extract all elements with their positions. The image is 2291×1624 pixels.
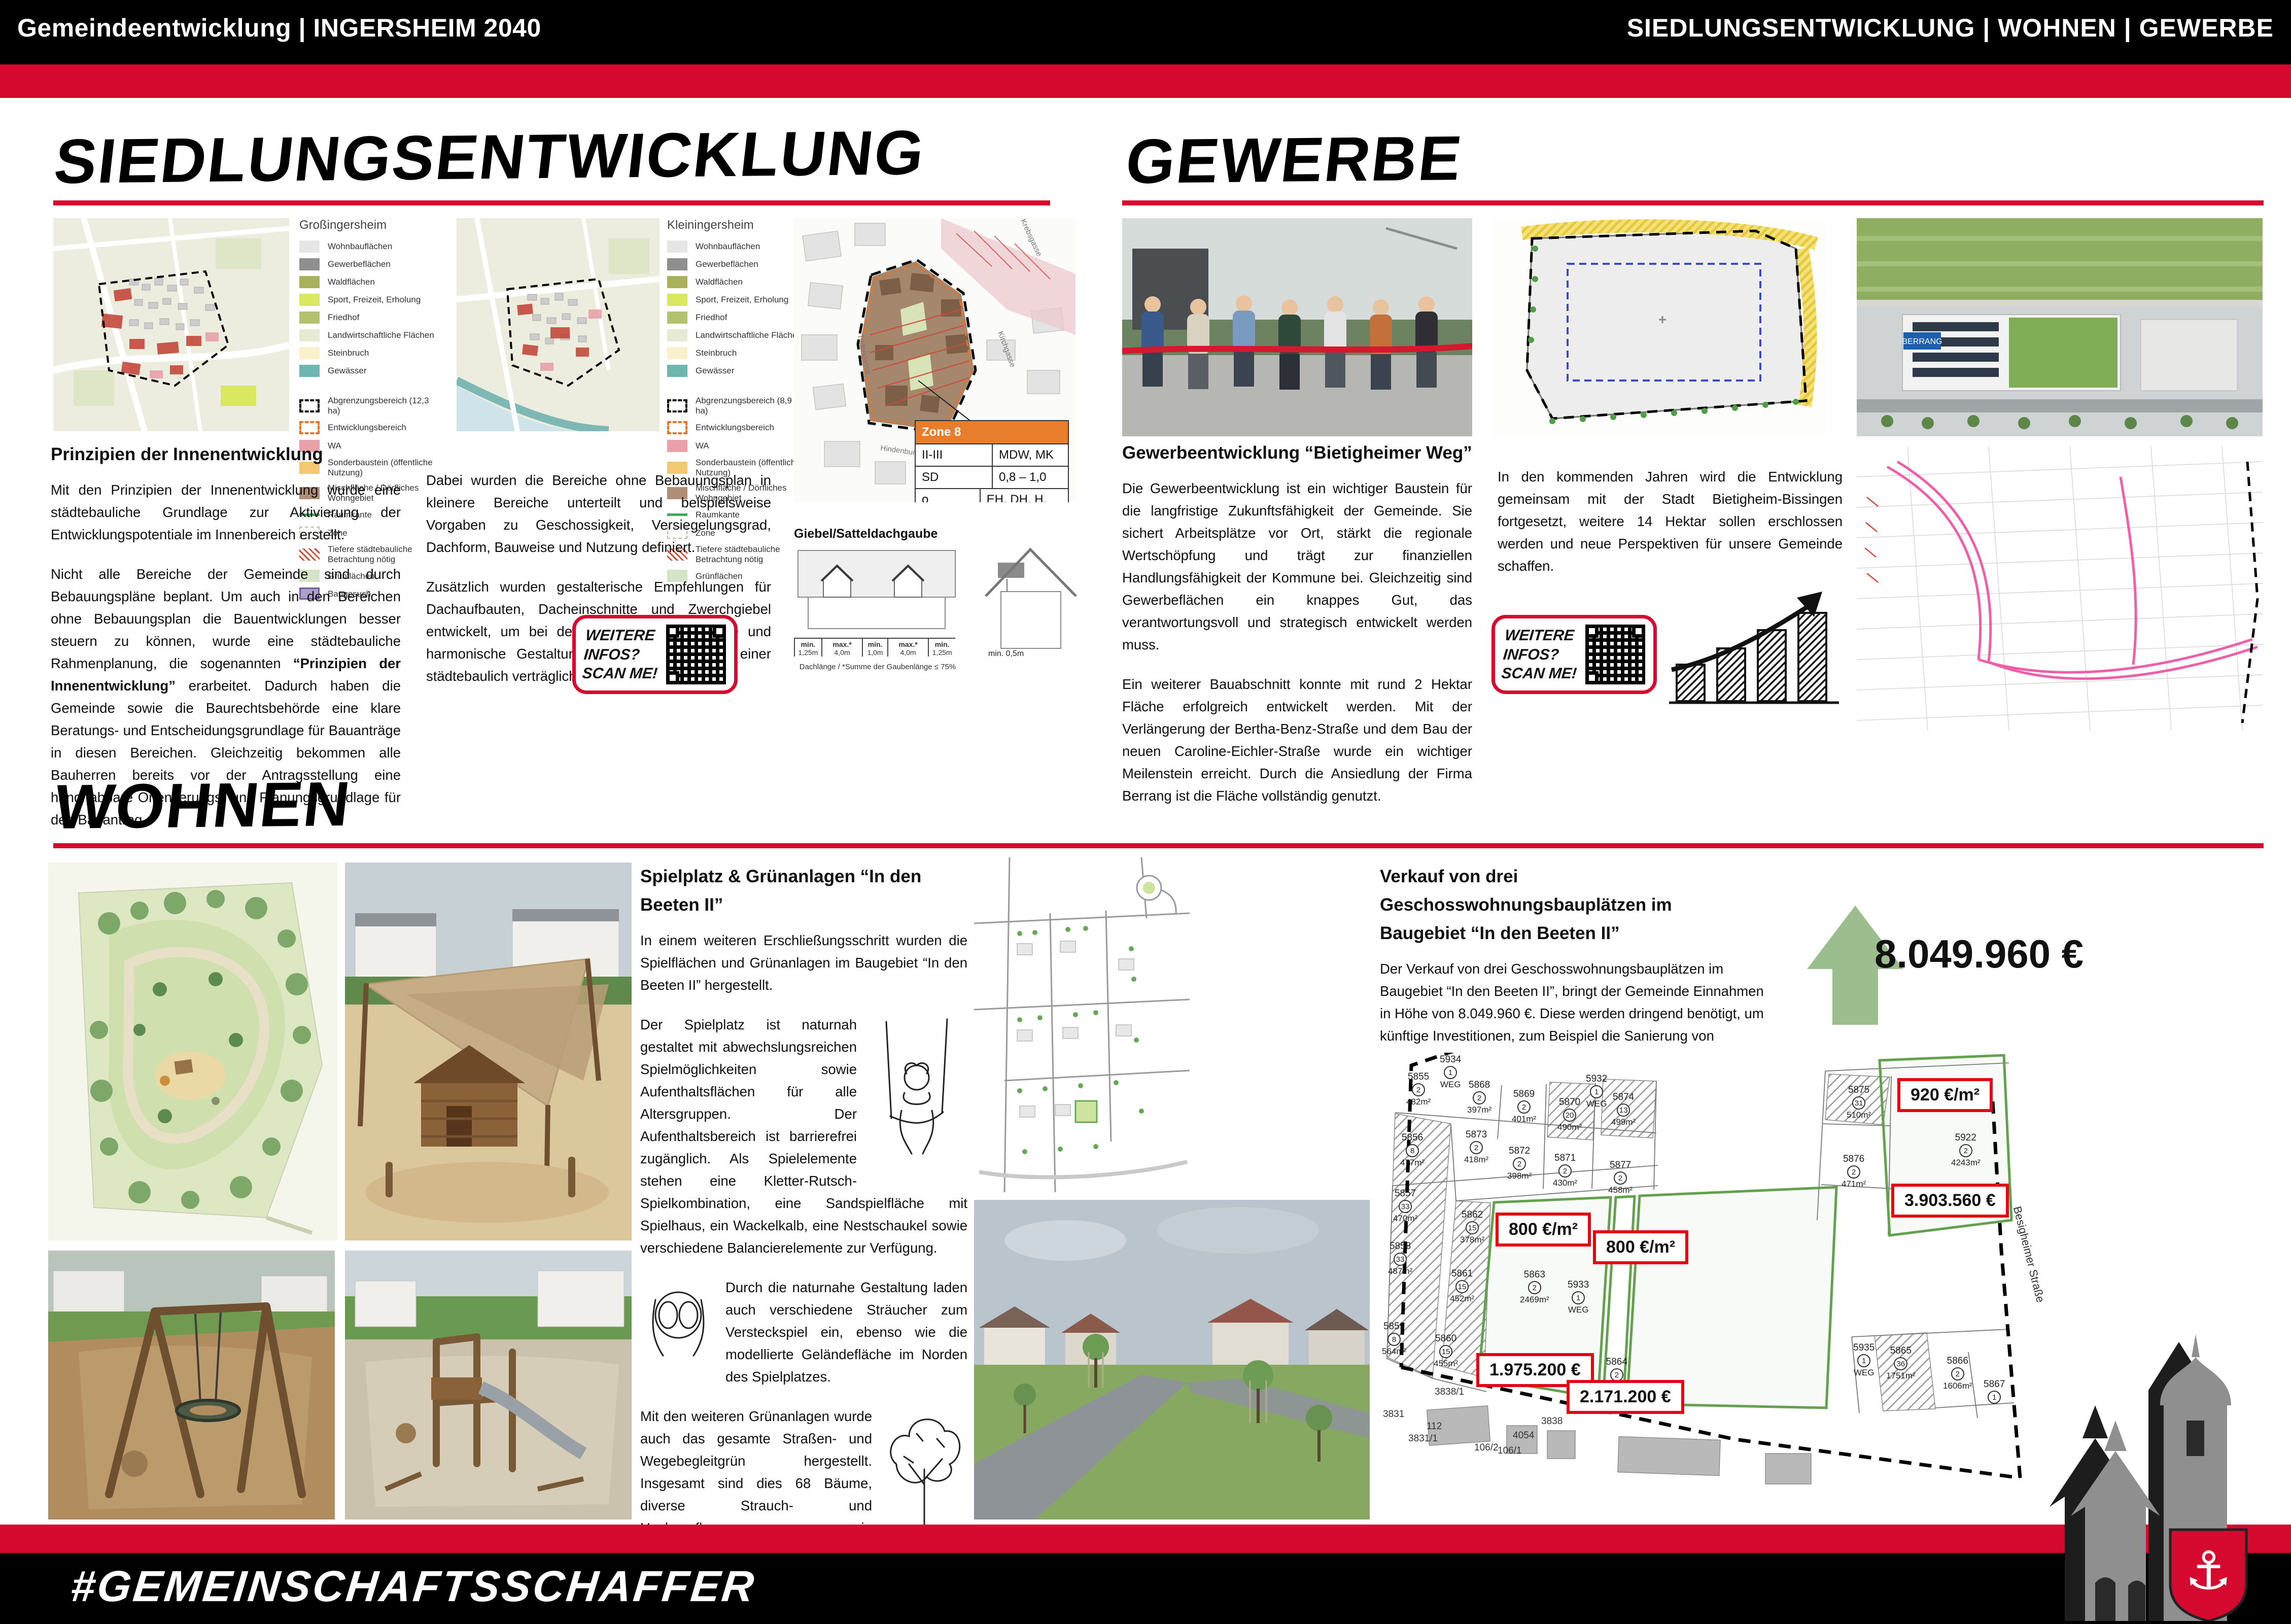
gaube-dimension: min.1,25m [794, 638, 821, 656]
qr-label: WEITEREINFOS?SCAN ME! [1501, 626, 1581, 683]
legend-swatch [299, 329, 320, 341]
photo-shade-sail [345, 862, 632, 1240]
parcel-number: 106/1 [1498, 1445, 1522, 1457]
parcel-number: 3838 [1541, 1416, 1563, 1427]
wohnen-heading: Spielplatz & Grünanlagen “In den Beeten … [640, 862, 967, 919]
parcel-label: 5861 15 452m² [1450, 1268, 1474, 1304]
church-emblem: ⚓ [2034, 1329, 2258, 1623]
legend-swatch [667, 421, 687, 434]
photo-aerial-berrang: BERRANG [1857, 218, 2263, 436]
legend-swatch [667, 258, 687, 270]
legend-item: Gewerbeflächen [667, 258, 805, 270]
legend-swatch [667, 347, 687, 359]
legend-swatch [299, 365, 320, 377]
paragraph: In den kommenden Jahren wird die Entwick… [1498, 466, 1843, 577]
header-title-right: SIEDLUNGSENTWICKLUNG | WOHNEN | GEWERBE [1627, 13, 2274, 43]
sketch-swing-girl-icon [866, 1017, 967, 1170]
legend-item: Landwirtschaftliche Flächen [667, 329, 805, 341]
legend-swatch [299, 258, 320, 270]
qr-badge-gewerbe: WEITEREINFOS?SCAN ME! [1491, 615, 1657, 694]
legend-swatch [667, 399, 687, 412]
parcel-number: 3838/1 [1435, 1387, 1464, 1398]
legend-swatch [667, 329, 687, 341]
gaube-dimension: max.*4,0m [821, 638, 862, 656]
gewerbe-text-col: Gewerbeentwicklung “Bietigheimer Weg” Di… [1122, 439, 1472, 824]
poster: Gemeindeentwicklung | INGERSHEIM 2040 SI… [0, 0, 2291, 1624]
aerial-building-sign: BERRANG [1902, 337, 1942, 346]
gaube-title: Giebel/Satteldachgaube [794, 527, 1086, 541]
paragraph: In einem weiteren Erschließungsschritt w… [640, 929, 967, 996]
price-box: 3.903.560 € [1891, 1184, 2009, 1218]
sketch-tree-icon [881, 1408, 967, 1542]
footer-hashtag: #GEMEINSCHAFTSSCHAFFER [68, 1562, 758, 1612]
sketch-hiding-girl-icon [640, 1280, 716, 1367]
legend-item: Waldflächen [299, 276, 437, 288]
parcel-label: 5932 1 WEG [1586, 1073, 1607, 1109]
header-title-left: Gemeindeentwicklung | INGERSHEIM 2040 [17, 13, 541, 43]
gewerbe-heading: Gewerbeentwicklung “Bietigheimer Weg” [1122, 439, 1472, 467]
drawing-development-extension [1857, 446, 2263, 731]
zone-table-row: o EH, DH, H, WGH [916, 489, 1068, 502]
revenue-amount: 8.049.960 € [1875, 931, 2084, 977]
gaube-dimension-row: min.1,25m max.*4,0m min.1,0m max.*4,0m m… [794, 638, 955, 656]
parcel-label: 5862 15 378m² [1460, 1209, 1484, 1245]
paragraph: Mit den Prinzipien der Innenentwicklung … [51, 479, 401, 546]
parcel-label: 5868 2 397m² [1467, 1079, 1491, 1115]
legend-item: Entwicklungsbereich [299, 421, 437, 434]
parcel-label: 5869 2 401m² [1512, 1088, 1536, 1124]
legend-item: Gewässer [667, 365, 805, 377]
parcel-label: 5856 8 477m² [1400, 1132, 1425, 1168]
legend-item: Wohnbauflächen [667, 240, 805, 253]
parcel-number: 3831/1 [1408, 1433, 1438, 1444]
footer-red-stripe [0, 1525, 2291, 1553]
qr-badge-siedlung: WEITEREINFOS?SCAN ME! [572, 615, 738, 694]
legend-area-list: Wohnbauflächen Gewerbeflächen Waldfläche… [299, 240, 437, 377]
parcel-label: 5865 36 1751m² [1886, 1345, 1916, 1381]
legend-swatch [299, 240, 320, 253]
parcel-label: 5858 33 487m² [1388, 1240, 1412, 1276]
legend-swatch [299, 347, 320, 359]
zone-table: Zone 8 II-III MDW, MK SD 0,8 – 1,0 o EH,… [915, 420, 1069, 502]
parcel-label: 5871 2 430m² [1553, 1152, 1577, 1188]
legend-item: Friedhof [299, 312, 437, 324]
parcel-label: 5874 13 499m² [1611, 1091, 1636, 1127]
legend-item: Landwirtschaftliche Flächen [299, 329, 437, 341]
rule-siedlung [53, 200, 1050, 205]
price-box: 800 €/m² [1593, 1230, 1688, 1264]
growth-chart-doodle [1664, 589, 1842, 708]
parcel-number: 112 [1427, 1421, 1442, 1432]
parcel-label: 5877 2 458m² [1608, 1159, 1633, 1195]
legend-item: Wohnbauflächen [299, 240, 437, 253]
legend-swatch [299, 421, 320, 434]
legend-item: Abgrenzungsbereich (12,3 ha) [299, 396, 437, 416]
parcel-label: 5934 1 WEG [1440, 1054, 1461, 1090]
legend-item: Steinbruch [667, 347, 805, 359]
legend-item: Entwicklungsbereich [667, 421, 805, 434]
price-box: 920 €/m² [1897, 1078, 1993, 1112]
col1-heading: Prinzipien der Innenentwicklung [51, 440, 401, 469]
legend-title: Kleiningersheim [667, 218, 805, 232]
rule-gewerbe [1122, 200, 2264, 205]
verkauf-heading: Verkauf von drei Geschosswohnungsbauplät… [1380, 862, 1745, 948]
zone-table-row: SD 0,8 – 1,0 [916, 467, 1068, 489]
legend-swatch [299, 294, 320, 306]
rule-wohnen [53, 843, 2264, 848]
qr-label: WEITEREINFOS?SCAN ME! [581, 626, 662, 683]
map-in-den-beeten [974, 857, 1190, 1192]
gaube-diagram: Giebel/Satteldachgaube [794, 527, 1086, 671]
photo-street [974, 1200, 1370, 1519]
legend-item: Gewässer [299, 365, 437, 377]
section-title-siedlungsentwicklung: SIEDLUNGSENTWICKLUNG [51, 117, 929, 198]
map-zone-detail: Tiefengasse Hindenburgplatz Kirchgasse K… [794, 218, 1075, 502]
zone-table-header: Zone 8 [916, 421, 1068, 444]
parcel-label: 5875 31 510m² [1847, 1084, 1871, 1120]
parcel-number: 3831 [1383, 1409, 1404, 1420]
legend-swatch [667, 276, 687, 288]
gaube-dimension: min.1,25m [928, 638, 955, 656]
legend-swatch [667, 365, 687, 377]
map-kleiningersheim [457, 218, 659, 431]
legend-item: WA [667, 440, 805, 452]
parcel-label: 5933 1 WEG [1568, 1279, 1589, 1315]
photo-ribbon-cutting [1122, 218, 1472, 436]
zone-table-row: II-III MDW, MK [916, 444, 1068, 467]
parcel-label: 5863 2 2469m² [1520, 1269, 1549, 1305]
legend-item: Sport, Freizeit, Erholung [667, 294, 805, 306]
legend-item: Waldflächen [667, 276, 805, 288]
parcel-label: 5935 1 WEG [1853, 1342, 1875, 1378]
parcel-label: 5922 2 4243m² [1951, 1132, 1981, 1168]
legend-item: Abgrenzungsbereich (8,9 ha) [667, 396, 805, 416]
gaube-dimension: max.*4,0m [887, 638, 928, 656]
parcel-number: 4054 [1513, 1430, 1534, 1441]
parcel-label: 5860 15 455m² [1434, 1333, 1458, 1369]
paragraph: Dabei wurden die Bereiche ohne Bebauungs… [426, 469, 771, 559]
map-grossingersheim [53, 218, 289, 431]
parcel-label: 5872 2 398m² [1507, 1145, 1532, 1181]
gaube-note: Dachlänge / *Summe der Gaubenlänge ≤ 75% [794, 663, 961, 671]
paragraph: Ein weiterer Bauabschnitt konnte mit run… [1122, 673, 1472, 807]
parcel-label: 5866 2 1606m² [1943, 1355, 1972, 1391]
legend-item: Gewerbeflächen [299, 258, 437, 270]
parcel-label: 5876 2 471m² [1842, 1153, 1866, 1189]
section-title-gewerbe: GEWERBE [1122, 122, 1466, 198]
photo-play-structure [345, 1251, 632, 1519]
legend-item: Sport, Freizeit, Erholung [299, 294, 437, 306]
siteplan-spielplatz [48, 862, 337, 1240]
svg-text:⚓: ⚓ [2184, 1540, 2232, 1602]
legend-swatch [299, 276, 320, 288]
legend-swatch [667, 294, 687, 306]
legend-item: Friedhof [667, 312, 805, 324]
price-box: 800 €/m² [1496, 1213, 1591, 1247]
wohnen-text-col: Spielplatz & Grünanlagen “In den Beeten … [640, 862, 967, 1624]
paragraph: Die Gewerbeentwicklung ist ein wichtiger… [1122, 477, 1472, 656]
qr-code [1585, 625, 1645, 684]
gewerbe-text-right: In den kommenden Jahren wird die Entwick… [1498, 466, 1843, 595]
legend-title: Großingersheim [299, 218, 437, 232]
parcel-number: 106/2 [1474, 1442, 1499, 1454]
qr-code [666, 625, 726, 684]
header-red-stripe [0, 64, 2291, 98]
section-title-wohnen: WOHNEN [51, 768, 355, 843]
legend-swatch [299, 312, 320, 324]
legend-swatch [667, 240, 687, 253]
parcel-label: 5873 2 418m² [1464, 1129, 1488, 1165]
parcel-label: 5867 1 [1984, 1378, 2005, 1404]
gaube-front-elevation [794, 548, 961, 632]
gaube-side-dim: min. 0,5m [988, 649, 1024, 659]
gaube-side-elevation [977, 543, 1083, 655]
price-box: 2.171.200 € [1567, 1380, 1684, 1414]
parcel-label: 5857 33 470m² [1393, 1188, 1417, 1224]
legend-area-list: Wohnbauflächen Gewerbeflächen Waldfläche… [667, 240, 805, 377]
parcel-label: 5870 20 490m² [1557, 1096, 1582, 1132]
legend-item: Steinbruch [299, 347, 437, 359]
parcel-label: 5855 2 482m² [1406, 1071, 1431, 1107]
plan-bietigheimer-weg [1491, 218, 1826, 436]
photo-nest-swing [48, 1251, 335, 1519]
legend-swatch [667, 440, 687, 452]
parcel-label: 5859 8 564m² [1382, 1321, 1406, 1357]
gaube-dimension: min.1,0m [862, 638, 887, 656]
legend-swatch [299, 399, 320, 412]
legend-swatch [667, 312, 687, 324]
